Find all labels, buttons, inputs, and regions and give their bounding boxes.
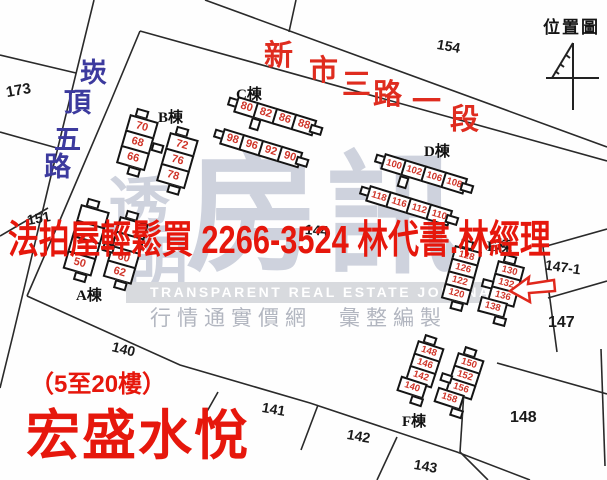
north-arrow-icon — [560, 64, 564, 67]
project-name: 宏盛水悅 — [26, 408, 250, 465]
floors-note: （5至20樓） — [30, 372, 166, 397]
north-arrow-icon — [566, 55, 570, 58]
north-arrow-icon — [552, 43, 573, 78]
ad-overlay-text: 法拍屋輕鬆買 2266-3524 林代書.林經理 — [8, 221, 551, 262]
highlight-arrow-icon — [510, 277, 555, 302]
location-map: 透明房訊 TRANSPARENT REAL ESTATE JOURNAL 行情通… — [0, 0, 607, 480]
